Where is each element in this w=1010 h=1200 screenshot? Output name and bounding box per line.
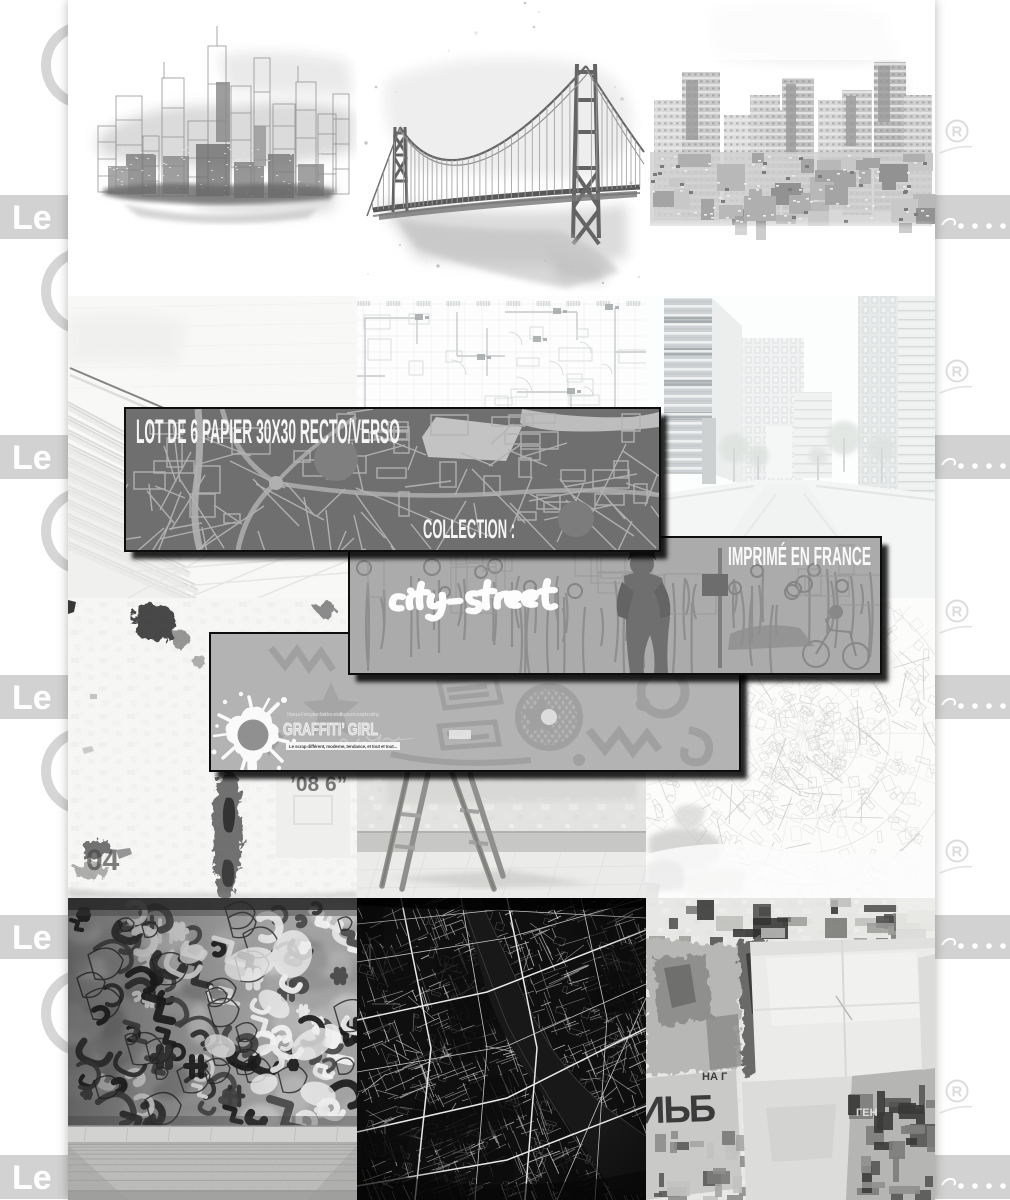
svg-text:LOT DE 6 PAPIER 30X30 RECTO/VE: LOT DE 6 PAPIER 30X30 RECTO/VERSO [136,413,400,451]
svg-text:ИЬБ: ИЬБ [646,1088,715,1133]
svg-text:COLLECTION :: COLLECTION : [423,514,515,544]
svg-text:Marque Française d'articles cr: Marque Française d'articles créatifs pou… [287,712,379,718]
svg-text:R: R [952,844,963,861]
svg-text:R: R [952,604,963,621]
svg-text:Le scrap différent, moderne, t: Le scrap différent, moderne, tendance, e… [289,744,397,749]
svg-text:R: R [952,364,963,381]
svg-text:ГЕН: ГЕН [856,1107,878,1119]
svg-text:R: R [952,124,963,141]
svg-text:IMPRIMÉ EN FRANCE: IMPRIMÉ EN FRANCE [728,541,871,571]
svg-text:04: 04 [86,844,120,877]
svg-text:GRAFFITI’ GIRL: GRAFFITI’ GIRL [283,719,378,739]
svg-text:НА Г: НА Г [702,1071,728,1083]
svg-text:R: R [952,1084,963,1101]
svg-text:’08 6”: ’08 6” [290,773,347,796]
